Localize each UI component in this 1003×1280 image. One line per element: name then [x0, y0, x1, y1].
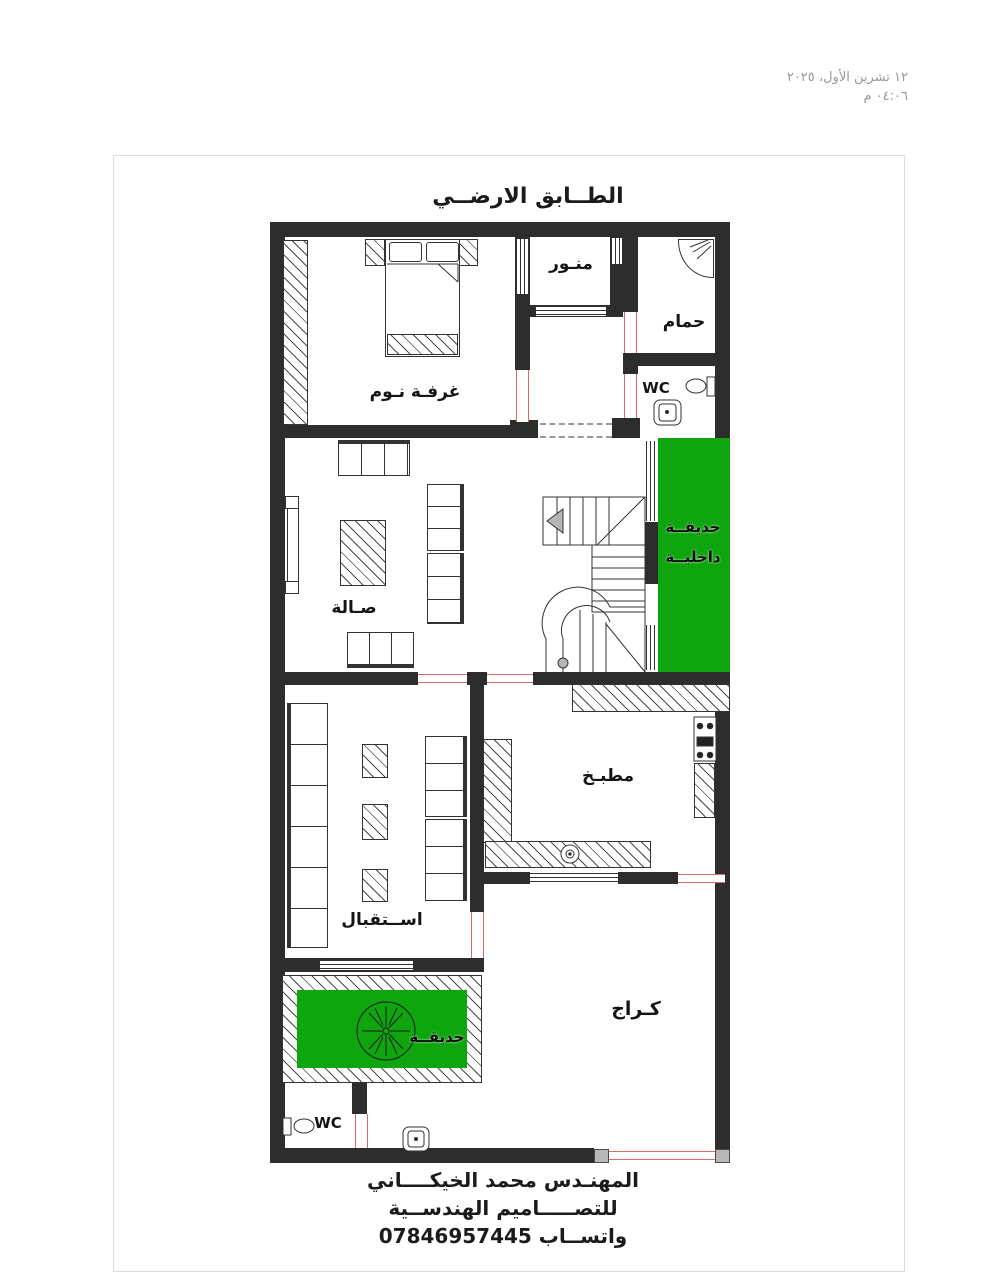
- room-label-reception: اســتقبال: [332, 910, 432, 930]
- wall: [618, 872, 678, 884]
- room-label-bedroom: غرفـة نـوم: [360, 382, 470, 402]
- garage-door: [609, 1151, 715, 1160]
- window: [611, 238, 622, 264]
- gate-post: [715, 1149, 730, 1163]
- bedroom-door: [516, 370, 529, 422]
- room-label-inner-garden: حديقــة داخليــة: [660, 512, 726, 572]
- side-table: [362, 804, 388, 840]
- engineer-tagline: للتصـــــاميم الهندســية: [318, 1194, 688, 1222]
- window: [646, 441, 656, 521]
- engineer-name: المهنـدس محمد الخيكــــاني: [318, 1166, 688, 1194]
- pillow: [426, 242, 459, 262]
- wall: [470, 672, 484, 912]
- room-label-wc-bottom: WC: [308, 1114, 348, 1132]
- open-passage: [540, 423, 612, 438]
- page-title: الطــابق الارضــي: [363, 184, 693, 209]
- kitchen-counter: [572, 684, 730, 712]
- printed-page: ١٢ تشرين الأول، ٢٠٢٥ ٠٤:٠٦ م الطــابق ال…: [0, 0, 1003, 1280]
- side-table: [362, 744, 388, 778]
- room-label-garden: حديقــة: [405, 1028, 469, 1046]
- window: [516, 239, 529, 294]
- closet: [283, 240, 308, 425]
- pillow: [389, 242, 422, 262]
- wc-door: [624, 374, 637, 418]
- nightstand: [365, 239, 385, 266]
- bed-foot: [387, 334, 458, 355]
- kitchen-counter: [485, 841, 651, 868]
- wall: [470, 958, 484, 972]
- inner-garden-line2: داخليــة: [660, 542, 726, 572]
- print-date: ١٢ تشرين الأول، ٢٠٢٥: [648, 68, 908, 87]
- nightstand: [458, 239, 478, 266]
- wall: [270, 222, 730, 237]
- sofa: [347, 632, 414, 668]
- inner-door: [471, 912, 484, 958]
- room-label-bathroom: حمام: [655, 312, 713, 332]
- wall: [623, 366, 638, 374]
- sofa: [427, 553, 464, 624]
- wall: [352, 1080, 367, 1114]
- speaker: [285, 581, 299, 594]
- sofa: [425, 819, 467, 901]
- garage-side-door: [678, 874, 725, 883]
- wall: [270, 1148, 594, 1163]
- reception-door: [418, 674, 467, 683]
- sofa: [425, 736, 467, 817]
- sofa: [287, 703, 328, 948]
- room-label-lightwell: منـور: [540, 254, 602, 274]
- wall: [644, 522, 658, 584]
- wall: [612, 418, 640, 438]
- side-table: [362, 869, 388, 902]
- gate-post: [594, 1149, 609, 1163]
- window: [646, 625, 656, 670]
- sofa: [338, 440, 410, 476]
- kitchen-door: [487, 674, 533, 683]
- print-time: ٠٤:٠٦ م: [648, 87, 908, 106]
- wc-door: [355, 1114, 368, 1148]
- whatsapp-number: واتســاب 07846957445: [318, 1222, 688, 1250]
- window: [536, 306, 606, 316]
- floor-plan: غرفـة نـوم منـور حمام WC صـالة حديقــة د…: [270, 222, 730, 1163]
- footer-credits: المهنـدس محمد الخيكــــاني للتصـــــاميم…: [318, 1166, 688, 1250]
- wall: [484, 872, 530, 884]
- room-label-kitchen: مطبـخ: [570, 766, 646, 786]
- wall: [270, 672, 418, 685]
- room-label-garage: كـراج: [598, 998, 674, 1021]
- bathroom-door: [624, 312, 637, 353]
- kitchen-counter: [483, 739, 512, 843]
- wall: [623, 237, 638, 312]
- shower: [678, 239, 714, 278]
- print-datetime: ١٢ تشرين الأول، ٢٠٢٥ ٠٤:٠٦ م: [648, 68, 908, 106]
- kitchen-counter: [694, 763, 715, 818]
- rug: [340, 520, 386, 586]
- window: [320, 960, 413, 970]
- tv-unit: [287, 498, 299, 594]
- room-label-hall: صـالة: [320, 598, 388, 618]
- window: [530, 873, 618, 883]
- wall: [623, 353, 715, 366]
- inner-garden-line1: حديقــة: [660, 512, 726, 542]
- sofa: [427, 484, 464, 551]
- speaker: [285, 496, 299, 509]
- room-label-wc-top: WC: [638, 379, 674, 397]
- wall: [270, 425, 538, 438]
